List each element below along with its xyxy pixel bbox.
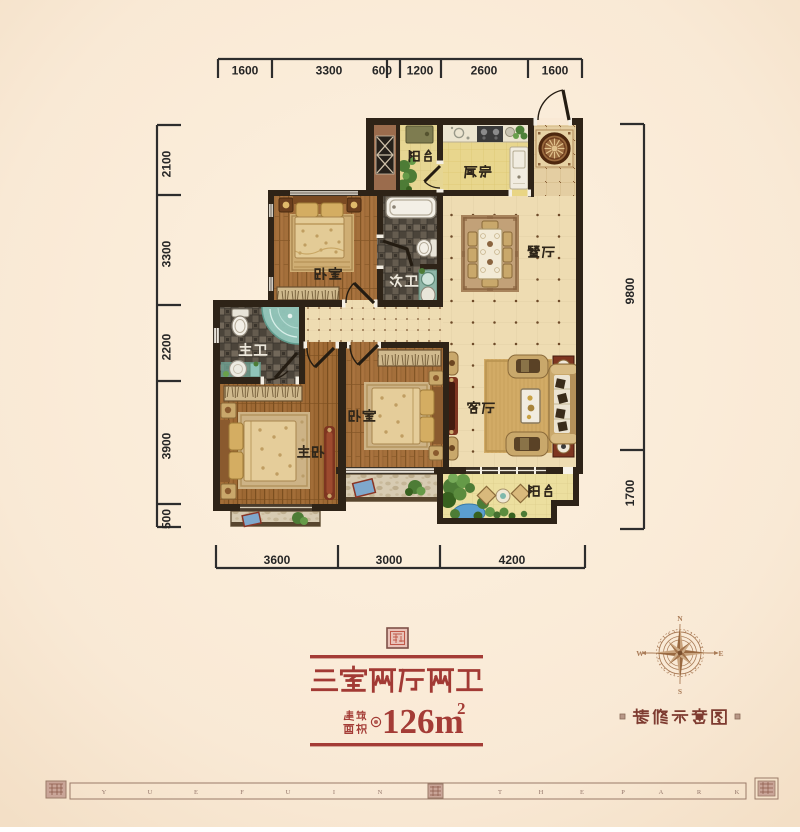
svg-text:E: E	[580, 789, 584, 796]
svg-text:1200: 1200	[407, 64, 434, 78]
svg-text:P: P	[621, 789, 625, 796]
svg-text:3000: 3000	[376, 553, 403, 567]
svg-text:U: U	[286, 789, 291, 796]
svg-text:E: E	[194, 789, 198, 796]
svg-text:K: K	[735, 789, 740, 796]
svg-text:3600: 3600	[264, 553, 291, 567]
svg-text:1600: 1600	[232, 64, 259, 78]
svg-text:T: T	[498, 789, 502, 796]
svg-text:3900: 3900	[160, 432, 174, 459]
svg-text:600: 600	[372, 64, 392, 78]
svg-text:3300: 3300	[160, 240, 174, 267]
svg-text:2200: 2200	[160, 333, 174, 360]
svg-text:3300: 3300	[316, 64, 343, 78]
svg-text:N: N	[378, 789, 383, 796]
svg-text:4200: 4200	[499, 553, 526, 567]
svg-text:E: E	[718, 649, 723, 658]
svg-text:U: U	[148, 789, 153, 796]
svg-text:N: N	[677, 614, 683, 623]
svg-text:H: H	[539, 789, 544, 796]
svg-text:1700: 1700	[623, 479, 637, 506]
svg-text:A: A	[659, 789, 664, 796]
svg-text:Y: Y	[102, 789, 107, 796]
svg-text:I: I	[333, 789, 335, 796]
svg-text:2100: 2100	[160, 150, 174, 177]
svg-text:W: W	[636, 649, 644, 658]
svg-text:9800: 9800	[623, 277, 637, 304]
svg-text:500: 500	[160, 509, 174, 529]
svg-text:2600: 2600	[471, 64, 498, 78]
svg-text:R: R	[697, 789, 702, 796]
svg-text:S: S	[678, 687, 682, 696]
svg-text:2: 2	[457, 699, 466, 718]
svg-text:1600: 1600	[542, 64, 569, 78]
svg-text:F: F	[240, 789, 244, 796]
svg-text:126m: 126m	[382, 702, 464, 741]
